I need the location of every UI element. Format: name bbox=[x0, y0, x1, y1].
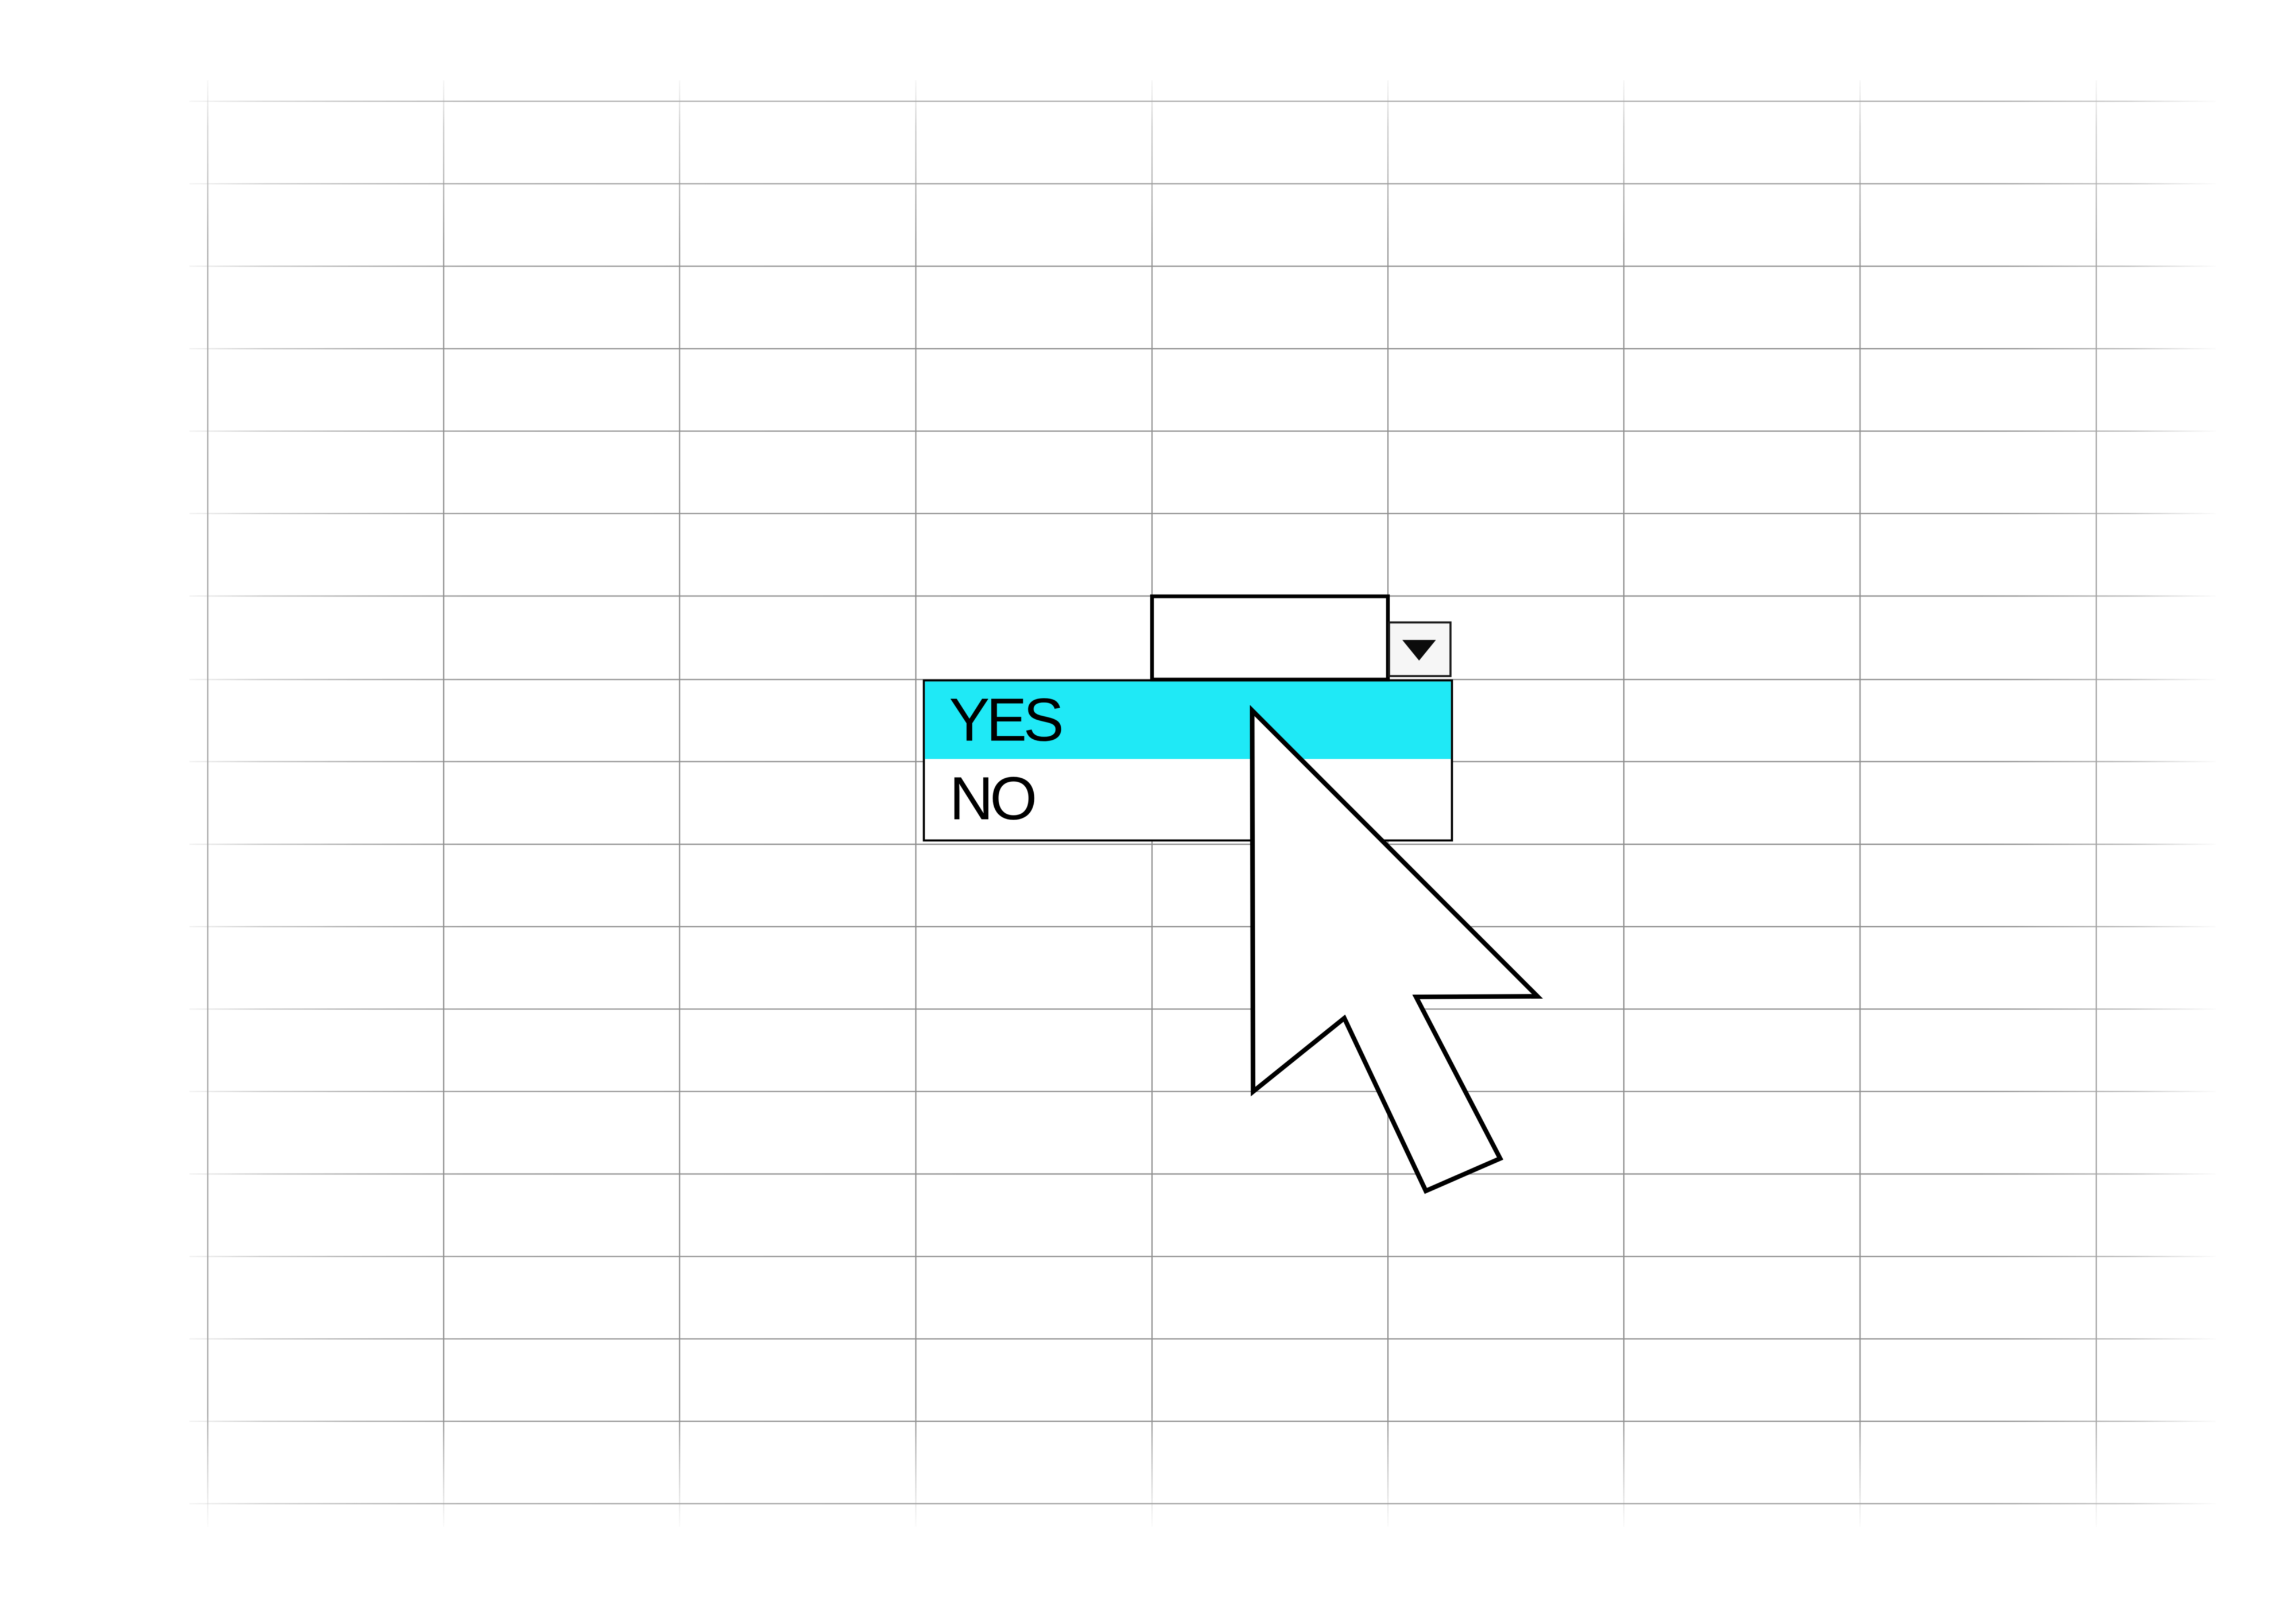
svg-text:YES: YES bbox=[949, 686, 1061, 754]
svg-text:NO: NO bbox=[949, 765, 1035, 833]
